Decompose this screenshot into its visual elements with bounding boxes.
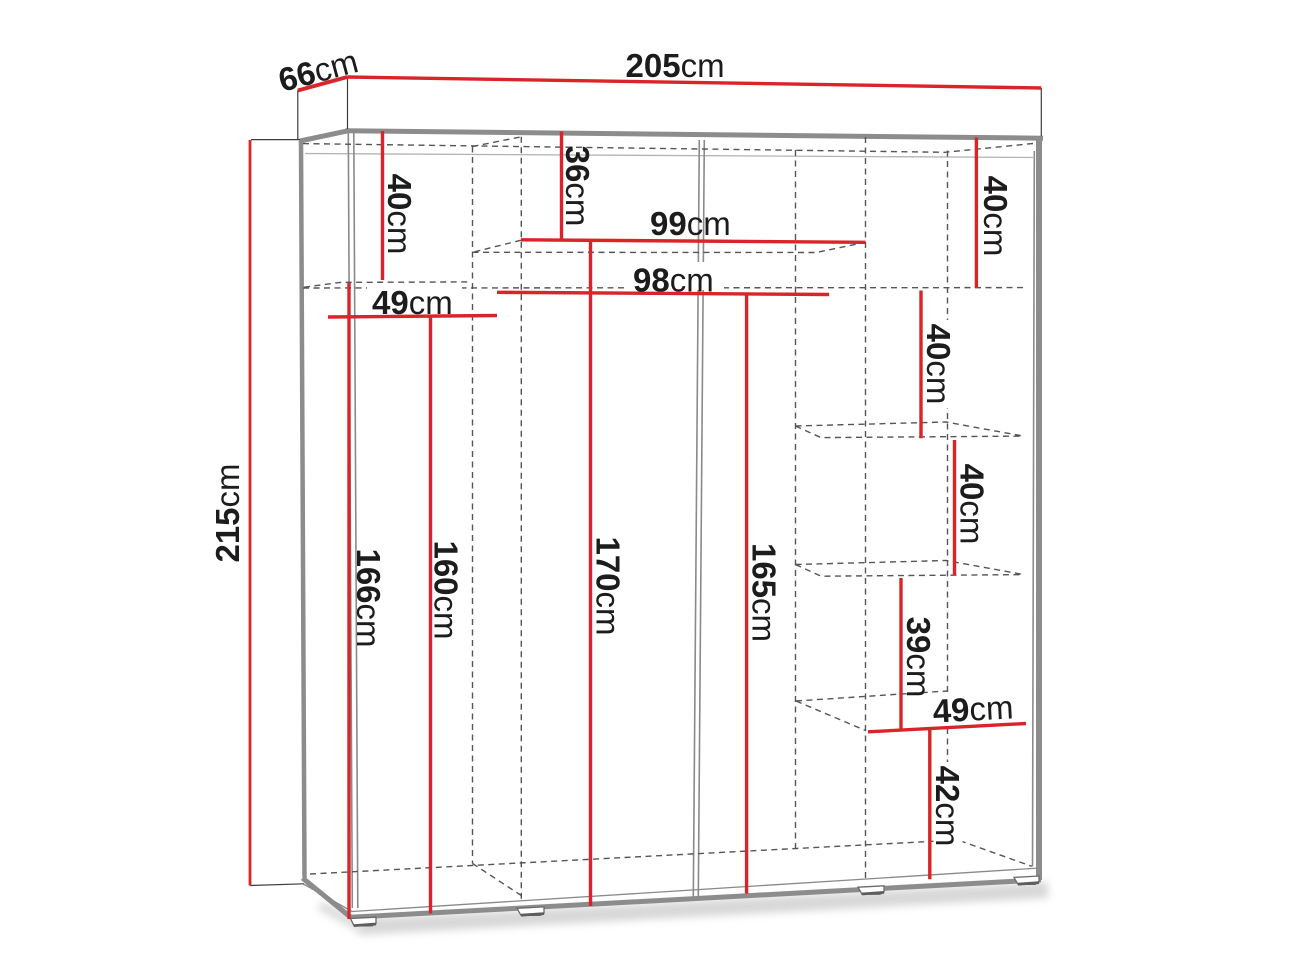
svg-text:39cm: 39cm [901,617,938,698]
svg-text:40cm: 40cm [921,324,958,405]
svg-text:205cm: 205cm [626,47,725,84]
svg-text:66cm: 66cm [274,42,362,99]
svg-text:42cm: 42cm [930,766,967,847]
svg-text:166cm: 166cm [350,548,387,647]
svg-text:99cm: 99cm [650,205,731,242]
svg-text:165cm: 165cm [746,543,783,642]
svg-text:40cm: 40cm [978,176,1015,257]
svg-text:215cm: 215cm [208,463,245,562]
svg-text:160cm: 160cm [428,540,465,639]
svg-text:40cm: 40cm [382,174,419,255]
svg-text:49cm: 49cm [372,284,453,321]
svg-text:170cm: 170cm [590,536,627,635]
svg-text:98cm: 98cm [633,262,714,299]
svg-text:49cm: 49cm [932,688,1015,729]
svg-text:40cm: 40cm [954,464,991,545]
svg-text:36cm: 36cm [560,146,597,227]
